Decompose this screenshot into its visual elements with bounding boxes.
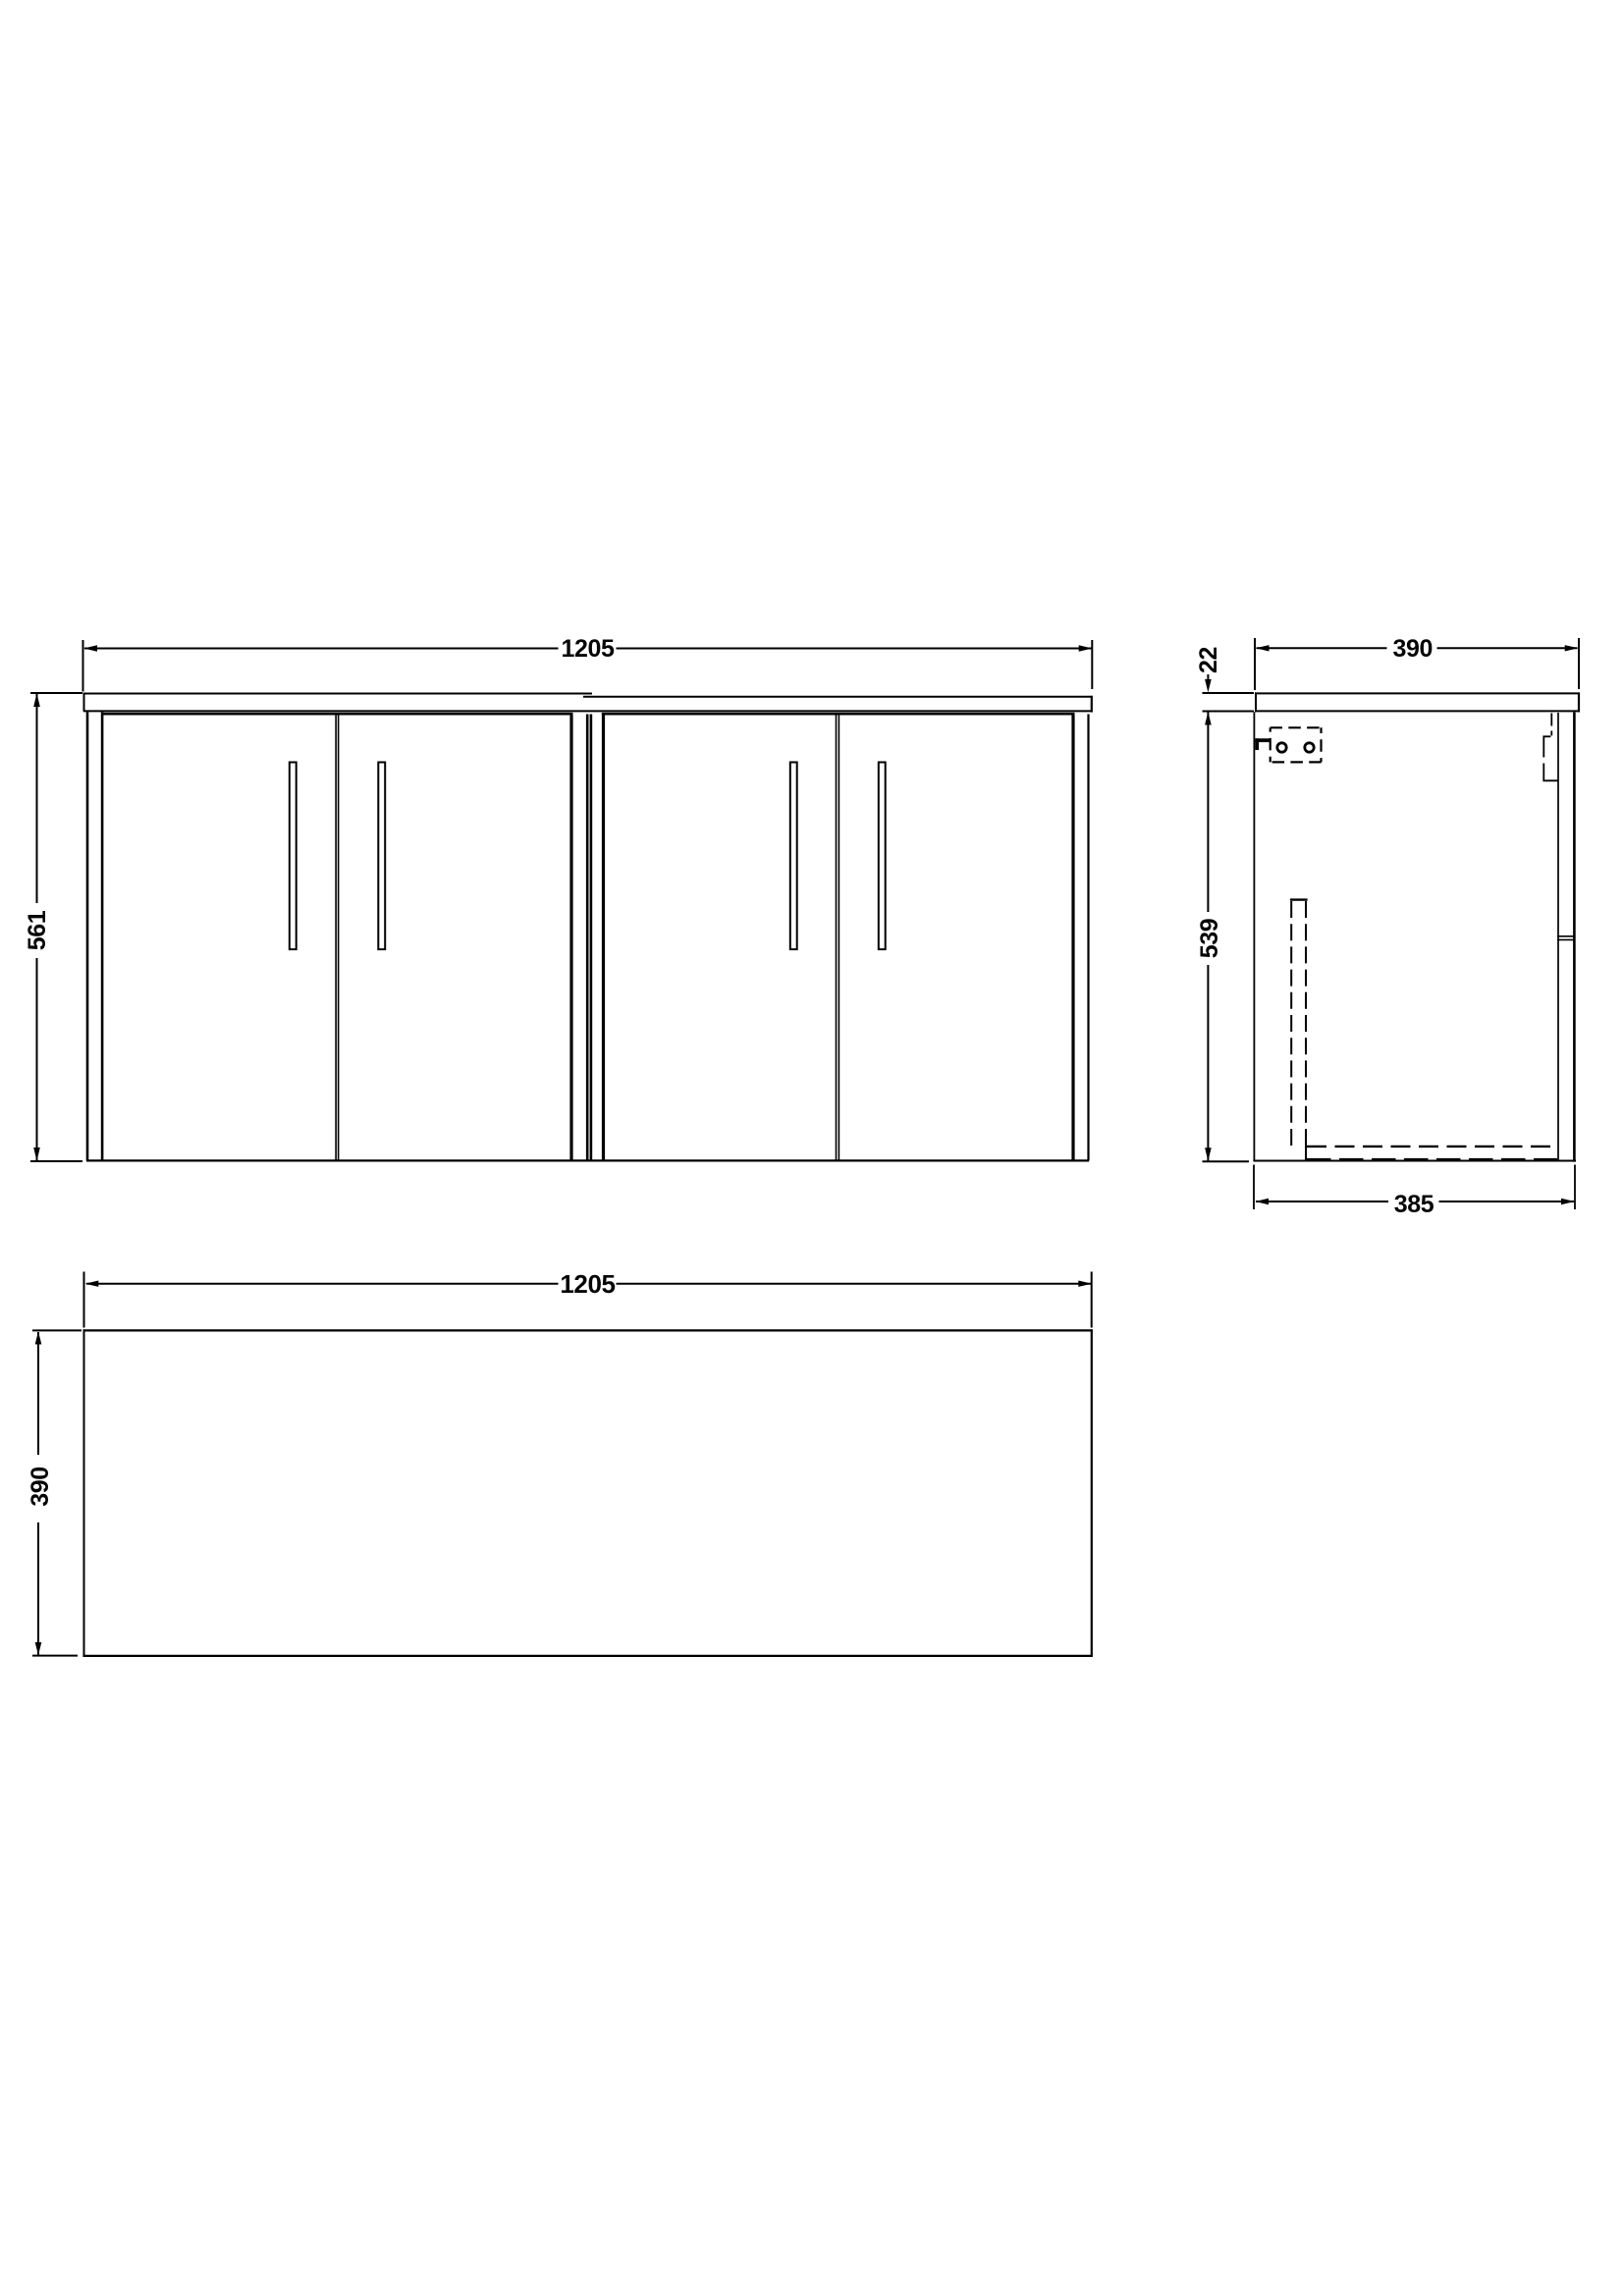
svg-text:1205: 1205 <box>560 1269 615 1299</box>
svg-text:539: 539 <box>1196 919 1223 959</box>
svg-text:390: 390 <box>27 1467 54 1507</box>
svg-text:1205: 1205 <box>561 635 615 663</box>
svg-text:385: 385 <box>1394 1191 1434 1218</box>
svg-text:561: 561 <box>24 910 51 950</box>
svg-text:390: 390 <box>1392 635 1433 663</box>
svg-text:22: 22 <box>1195 647 1222 673</box>
